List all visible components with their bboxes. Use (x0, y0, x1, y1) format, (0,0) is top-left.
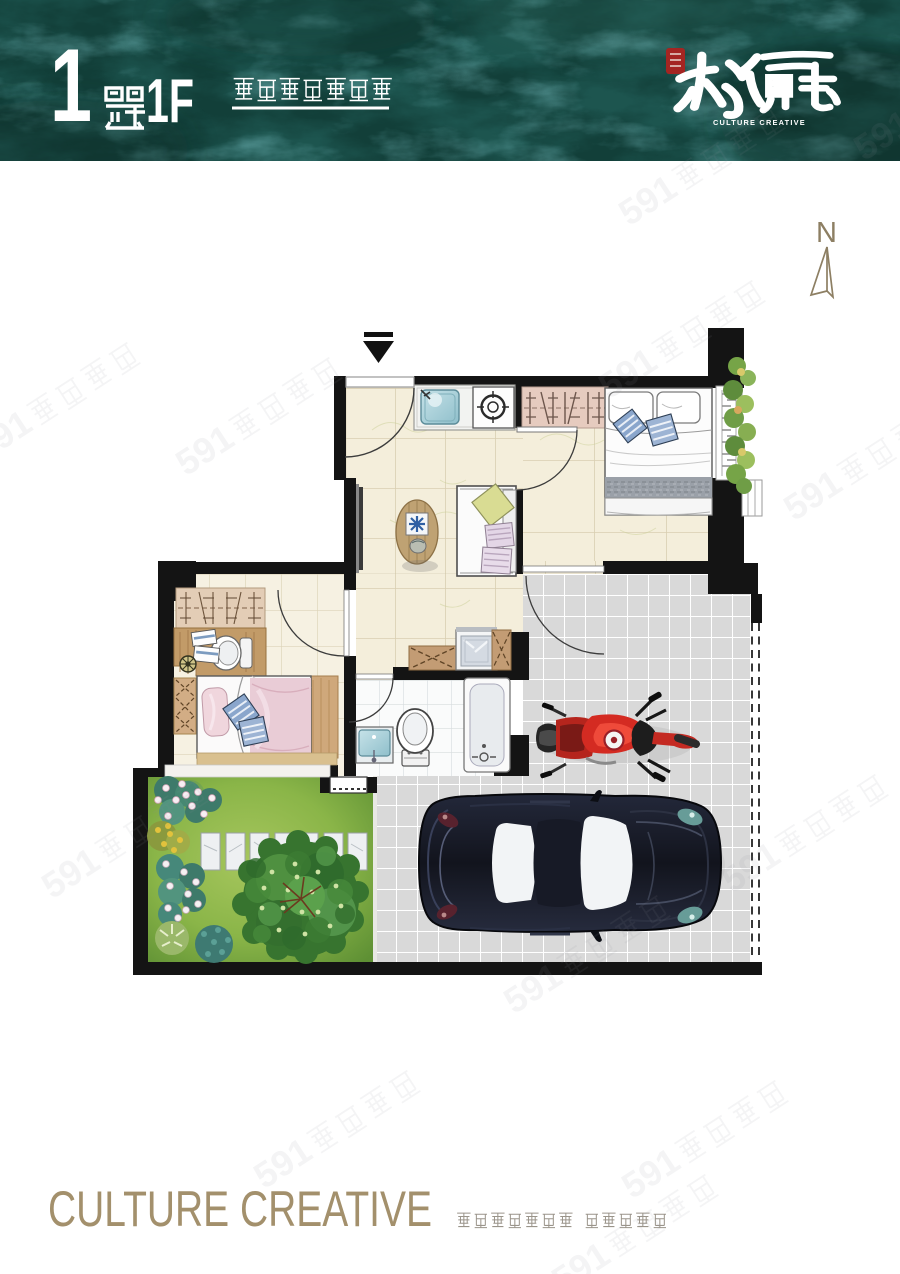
svg-text:N: N (816, 217, 837, 249)
svg-text:1: 1 (50, 28, 92, 144)
svg-text:1F: 1F (146, 67, 194, 136)
svg-text:CULTURE CREATIVE: CULTURE CREATIVE (48, 1181, 432, 1237)
